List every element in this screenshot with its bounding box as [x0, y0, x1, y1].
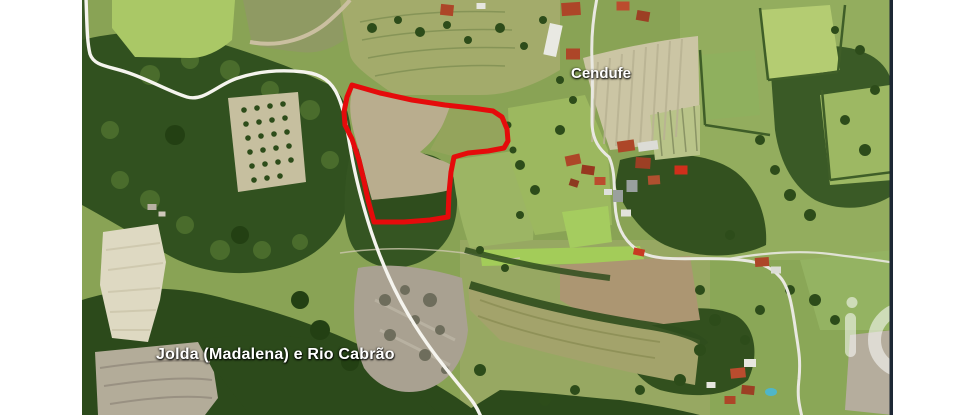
- place-label-jolda: Jolda (Madalena) e Rio Cabrão: [156, 346, 395, 364]
- screenshot-canvas: Cendufe Jolda (Madalena) e Rio Cabrão: [0, 0, 960, 415]
- aerial-photo: Cendufe Jolda (Madalena) e Rio Cabrão: [82, 0, 893, 415]
- place-label-cendufe: Cendufe: [571, 65, 631, 82]
- watermark-strip: [890, 0, 894, 415]
- i-ring-logo-watermark: [847, 297, 858, 308]
